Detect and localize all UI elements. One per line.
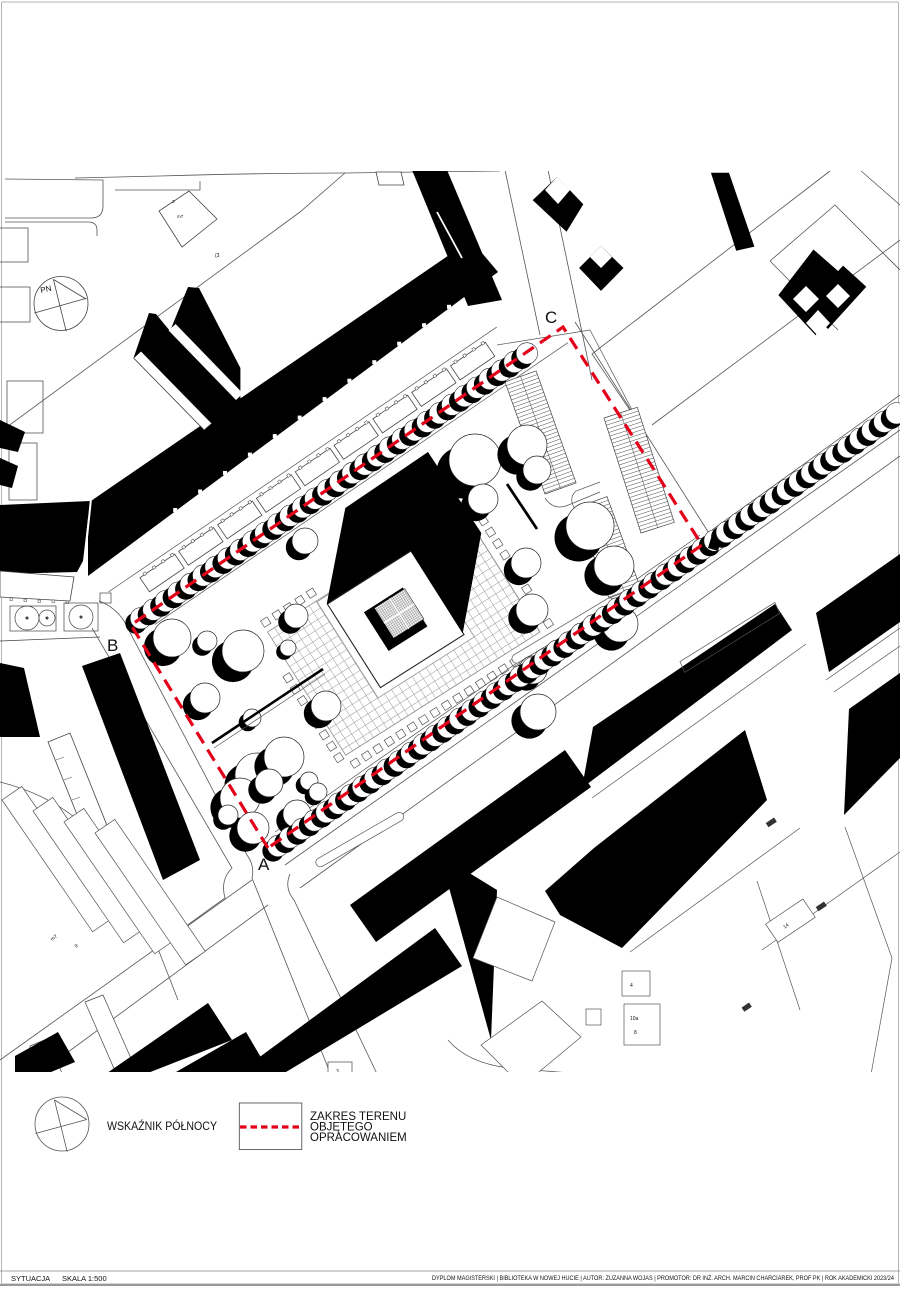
svg-text:4: 4: [630, 983, 633, 989]
svg-text:B: B: [107, 636, 118, 655]
svg-text:SKALA 1:500: SKALA 1:500: [62, 1274, 107, 1283]
svg-text:C: C: [545, 308, 557, 327]
svg-text:OPRACOWANIEM: OPRACOWANIEM: [310, 1132, 407, 1144]
svg-text:8: 8: [634, 1030, 637, 1036]
svg-text:(3: (3: [215, 253, 220, 259]
svg-text:SYTUACJA: SYTUACJA: [11, 1274, 50, 1283]
svg-text:DYPLOM MAGISTERSKI | BIBLIOT: DYPLOM MAGISTERSKI | BIBLIOTEKA W NOWEJ …: [432, 1275, 894, 1282]
svg-text:10a: 10a: [630, 1016, 639, 1022]
svg-text:A: A: [258, 855, 270, 874]
svg-text:WSKAŹNIK PÓŁNOCY: WSKAŹNIK PÓŁNOCY: [107, 1119, 217, 1133]
svg-text:m7: m7: [177, 214, 184, 219]
